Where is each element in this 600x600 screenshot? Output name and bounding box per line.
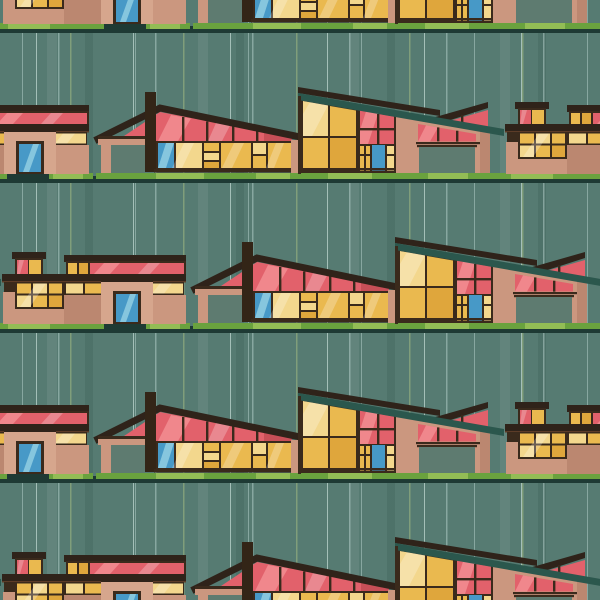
- flat-roof-house: [0, 102, 93, 180]
- flat-roof-house: [0, 252, 190, 330]
- slant-roof-house: [296, 387, 506, 479]
- houses-pattern-canvas: [0, 0, 600, 600]
- flat-roof-house: [0, 552, 190, 600]
- pattern-illustration: [0, 0, 600, 600]
- pattern-rows: [0, 0, 600, 600]
- slant-roof-house: [0, 237, 3, 329]
- flat-roof-house: [501, 402, 600, 480]
- slant-roof-house: [0, 537, 3, 600]
- gable-house: [96, 92, 301, 179]
- flat-roof-house: [501, 102, 600, 180]
- gable-house: [96, 392, 301, 479]
- slant-roof-house: [393, 537, 600, 600]
- gable-house: [193, 242, 398, 329]
- flat-roof-house: [0, 0, 190, 30]
- gable-house: [193, 0, 398, 29]
- flat-roof-house: [0, 402, 93, 480]
- slant-roof-house: [0, 0, 3, 29]
- gable-house: [193, 542, 398, 600]
- slant-roof-house: [393, 0, 600, 29]
- slant-roof-house: [296, 87, 506, 179]
- slant-roof-house: [393, 237, 600, 329]
